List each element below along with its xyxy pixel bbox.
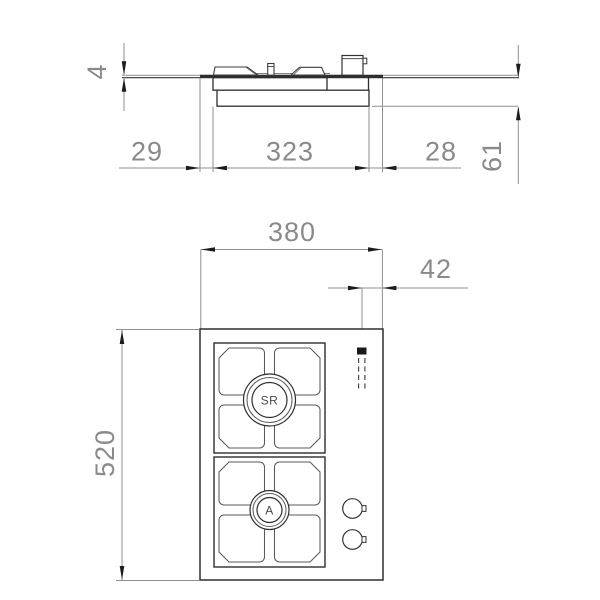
dim-depth-below-label: 61 bbox=[477, 140, 507, 172]
burner-cap-side bbox=[268, 64, 274, 76]
burner-semi-rapid: SR bbox=[244, 374, 296, 426]
side-view: 4 29 323 28 61 bbox=[82, 43, 521, 184]
dim-right-clearance-label: 28 bbox=[425, 137, 457, 167]
hob-body-section bbox=[213, 78, 369, 107]
hob-side-profile bbox=[214, 56, 367, 76]
control-knob-tab bbox=[362, 506, 366, 512]
control-knob-tab-side bbox=[363, 58, 367, 64]
burner-auxiliary: A bbox=[250, 491, 289, 530]
dim-gas-offset-label: 42 bbox=[420, 254, 452, 284]
gas-connection-square bbox=[357, 348, 367, 355]
control-knob-tab bbox=[362, 537, 366, 543]
dim-cutout-width-label: 323 bbox=[266, 137, 314, 167]
side-view-dimension-lines bbox=[119, 43, 518, 184]
hob-lower-casing bbox=[217, 90, 369, 106]
burner-bowl-housing bbox=[213, 78, 327, 91]
burner-semi-rapid-label: SR bbox=[261, 393, 279, 407]
pan-support-right bbox=[291, 67, 325, 75]
burner-auxiliary-label: A bbox=[265, 503, 274, 517]
dim-overall-depth-label: 520 bbox=[90, 429, 120, 477]
plan-view: SR A 380 42 520 bbox=[90, 217, 468, 581]
cooktop-installation-drawing: 4 29 323 28 61 bbox=[0, 0, 600, 600]
drawing-canvas: 4 29 323 28 61 bbox=[0, 0, 600, 600]
dim-top-thickness-label: 4 bbox=[82, 63, 112, 79]
dim-overall-width-label: 380 bbox=[268, 217, 316, 247]
dim-left-clearance-label: 29 bbox=[131, 137, 163, 167]
